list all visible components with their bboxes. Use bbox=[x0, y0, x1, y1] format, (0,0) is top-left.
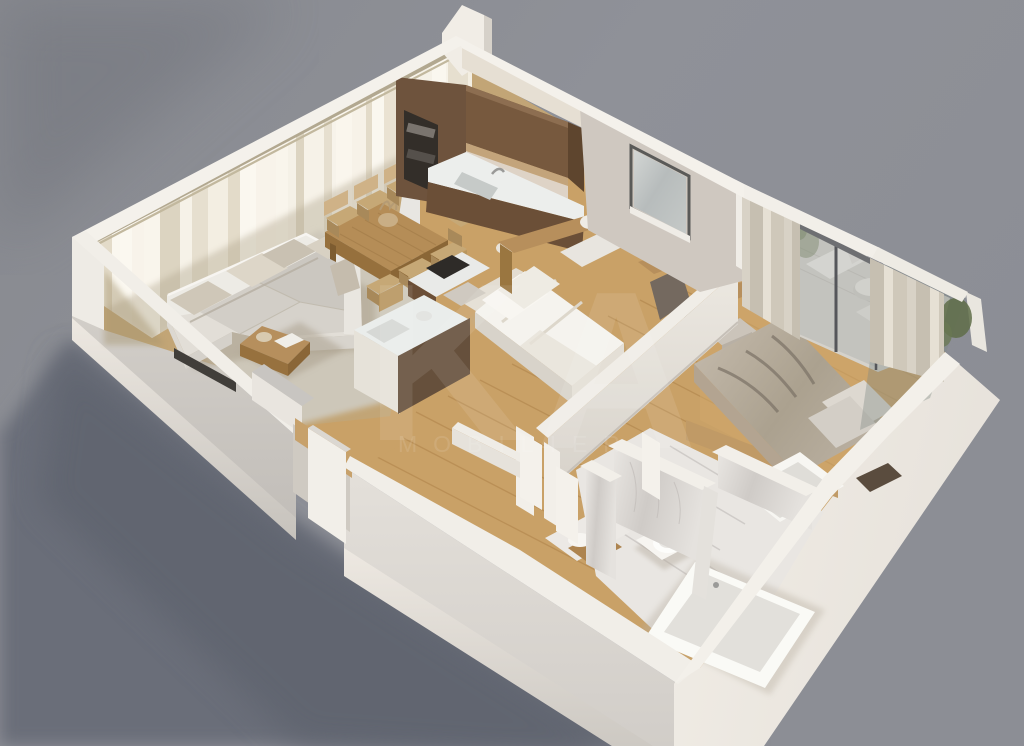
svg-text:A: A bbox=[535, 244, 698, 496]
svg-text:MOBILIER: MOBILIER bbox=[398, 431, 636, 457]
